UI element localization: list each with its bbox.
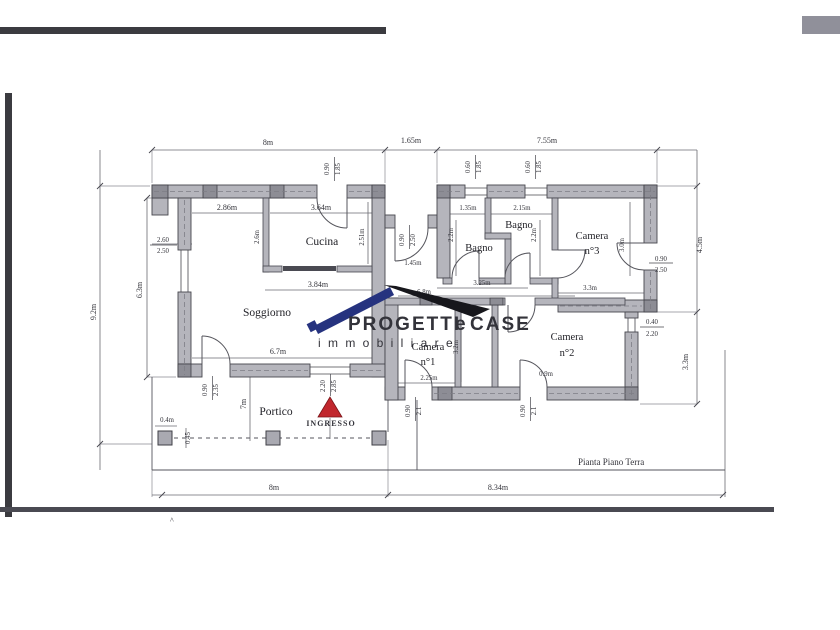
watermark-brand-e: e bbox=[455, 314, 468, 335]
watermark-brand-case: CASE bbox=[470, 314, 531, 335]
dim-label: 4.5m bbox=[695, 236, 704, 253]
dim-label: 2.50 bbox=[410, 233, 417, 245]
dim-label: 2.35 bbox=[213, 383, 220, 395]
room-label-bagno-1: Bagno bbox=[465, 243, 492, 254]
dim-label: 3.25m bbox=[473, 280, 491, 287]
dim-label: 1.85 bbox=[335, 162, 342, 174]
dim-label: 3.0m bbox=[619, 237, 626, 251]
dim-label: 0.60 bbox=[465, 160, 472, 172]
dim-label: 1.65m bbox=[401, 136, 422, 145]
dim-label: 2.51m bbox=[359, 228, 366, 246]
scan-artifact-left-bar bbox=[5, 93, 12, 517]
dim-label: 7m bbox=[239, 398, 248, 409]
dim-label: 0.4m bbox=[160, 417, 174, 424]
entrance-label: INGRESSO bbox=[306, 419, 355, 428]
room-label-camera2-number: n°2 bbox=[560, 348, 575, 359]
scan-artifact-top-right-mark bbox=[802, 16, 840, 34]
dim-label: 6.7m bbox=[270, 347, 287, 356]
dim-label: 2.1 bbox=[531, 407, 538, 416]
dim-label: 1.45m bbox=[404, 260, 422, 267]
room-label-cucina: Cucina bbox=[306, 236, 339, 248]
dim-label: 2.20 bbox=[646, 331, 658, 338]
dim-label: 2.1 bbox=[416, 407, 423, 416]
dim-label: 8.34m bbox=[488, 483, 509, 492]
watermark-tagline-immobiliare: i m m o b i l i a r e bbox=[318, 336, 455, 350]
dim-label: 2.50 bbox=[157, 248, 169, 255]
dim-label: 0.90 bbox=[399, 233, 406, 245]
scan-caret-mark: ^ bbox=[170, 516, 174, 525]
dim-label: 0.90 bbox=[405, 404, 412, 416]
dim-label: 1.35m bbox=[459, 205, 477, 212]
dim-label: 3.3m bbox=[681, 353, 690, 370]
dim-label: 9.2m bbox=[89, 303, 98, 320]
dim-label: 6.3m bbox=[135, 281, 144, 298]
dim-label: 2.2m bbox=[448, 227, 455, 241]
dim-label: 2.6m bbox=[254, 229, 261, 243]
dim-label: 2.85 bbox=[331, 379, 338, 391]
scan-artifact-bottom-bar bbox=[0, 507, 774, 512]
dim-label: 7.55m bbox=[537, 136, 558, 145]
entrance-arrow-icon bbox=[318, 397, 342, 417]
floor-plan: ^ bbox=[0, 0, 840, 630]
dim-label: 2.86m bbox=[217, 203, 238, 212]
dim-label: 0.60 bbox=[525, 160, 532, 172]
dim-label: 2.25m bbox=[420, 375, 438, 382]
room-label-portico: Portico bbox=[259, 406, 292, 418]
dim-label: 3.84m bbox=[308, 280, 329, 289]
dim-label: 0.90 bbox=[202, 383, 209, 395]
entrance-marker: INGRESSO bbox=[306, 397, 355, 428]
dim-label: 0.9m bbox=[539, 371, 553, 378]
dim-label: 0.90 bbox=[520, 404, 527, 416]
room-label-camera1-number: n°1 bbox=[421, 357, 436, 368]
dim-label: 0.90 bbox=[324, 162, 331, 174]
dim-label: 3.64m bbox=[311, 203, 332, 212]
room-label-camera2: Camera bbox=[551, 332, 584, 343]
scan-artifact-top-bar bbox=[0, 27, 386, 34]
dim-label: 1.85 bbox=[476, 160, 483, 172]
dim-label: 2.20 bbox=[320, 379, 327, 391]
room-label-camera3-number: n°3 bbox=[585, 246, 600, 257]
kitchen-sliding-door bbox=[283, 266, 336, 271]
room-label-camera3: Camera bbox=[576, 231, 609, 242]
dim-label: 2.15m bbox=[513, 205, 531, 212]
dim-label: 0.45 bbox=[185, 431, 192, 443]
dim-label: 8m bbox=[263, 138, 274, 147]
scanned-floor-plan-page: ^ bbox=[0, 0, 840, 630]
dim-label: 1.85 bbox=[536, 160, 543, 172]
watermark-brand-progetti: PROGETTI bbox=[348, 314, 461, 335]
dim-label: 0.90 bbox=[655, 256, 667, 263]
dim-label: 3.3m bbox=[583, 285, 597, 292]
dim-label: 0.40 bbox=[646, 319, 658, 326]
dim-label: 8m bbox=[269, 483, 280, 492]
dim-label: 2.60 bbox=[157, 237, 169, 244]
dim-label: 2.50 bbox=[655, 267, 667, 274]
room-label-bagno-2: Bagno bbox=[505, 220, 532, 231]
room-label-soggiorno: Soggiorno bbox=[243, 307, 291, 319]
drawing-title: Pianta Piano Terra bbox=[578, 457, 644, 467]
